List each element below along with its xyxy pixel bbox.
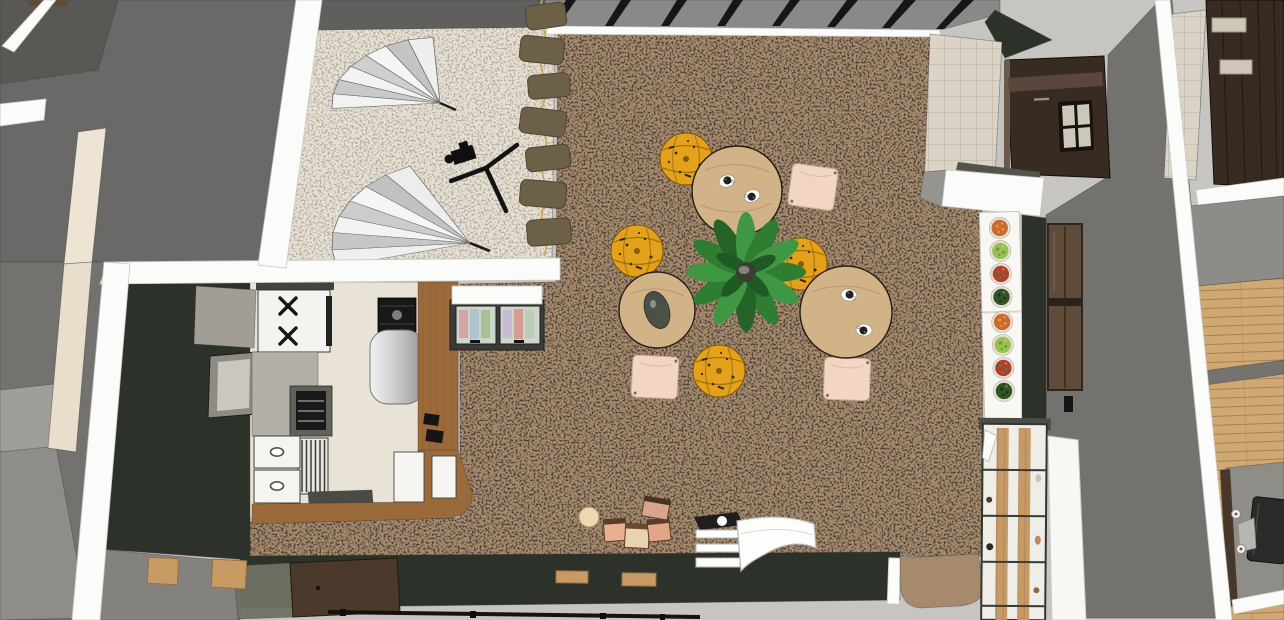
white-cabinet-1 [394, 452, 424, 502]
carpet-tongue [900, 554, 984, 608]
bench-rails [696, 530, 740, 567]
kids-block-3 [647, 518, 671, 542]
tile-step-2 [1220, 60, 1252, 74]
render-stage: Top-down 3D render of a cafe interior wi… [0, 0, 1284, 620]
interior-render [0, 0, 1284, 620]
dish-rack [298, 438, 328, 494]
salad-plate-1 [989, 217, 1011, 239]
kids-block-1 [603, 518, 626, 541]
case-top [452, 286, 542, 304]
pink-cushion-3 [823, 357, 870, 401]
gray-cabinet-top [194, 286, 256, 348]
gas-stove [258, 290, 332, 352]
salad-plate-6 [992, 334, 1014, 356]
brown-glass-panels [1048, 224, 1082, 412]
photo-studio [283, 0, 555, 267]
case-door-1 [456, 306, 496, 344]
cube-shelf-unit [977, 418, 1051, 620]
tile-step-1 [1212, 18, 1246, 32]
wall-socket [1064, 396, 1073, 412]
white-cabinet-2 [432, 456, 456, 498]
kids-round-pouf [579, 507, 599, 527]
entry-door [290, 558, 400, 617]
door-handle [316, 586, 320, 590]
round-table-2 [619, 272, 695, 348]
salad-plate-7 [993, 357, 1015, 379]
salad-plate-8 [993, 380, 1015, 402]
case-door-2 [500, 306, 540, 344]
hutch-window [1058, 100, 1094, 152]
range-hood [256, 282, 334, 290]
salad-plate-4 [991, 286, 1013, 308]
bar-back-wall [1022, 215, 1046, 428]
work-desk [1220, 462, 1284, 607]
kitchen-drawer-2 [254, 470, 300, 503]
left-gray-slab [0, 384, 56, 452]
floor-pouf-2 [611, 225, 663, 277]
kitchen-drawer-1 [254, 436, 300, 468]
shelf-item-1 [986, 497, 992, 503]
pink-cushion-1 [787, 163, 838, 211]
studio-back-wall [296, 0, 545, 30]
shelf-item-5 [1033, 587, 1039, 593]
kitchen-window [208, 352, 258, 418]
salad-plate-3 [990, 263, 1012, 285]
kids-block-4 [641, 496, 670, 520]
fridge [370, 330, 424, 404]
pastry-display-case [450, 286, 544, 350]
round-table-3 [800, 266, 892, 358]
shelf-item-2 [986, 543, 993, 550]
right-gray-floor [1190, 196, 1284, 286]
dark-wood-panel [1206, 0, 1284, 188]
pink-cushion-2 [631, 355, 679, 399]
wood-hutch [1004, 56, 1110, 178]
floor-pouf-4 [693, 345, 745, 397]
kitchen [86, 280, 472, 560]
wall-oven [290, 386, 332, 436]
door-jamb [887, 558, 901, 604]
espresso-machine [378, 298, 416, 332]
studio-front-wall [100, 258, 560, 284]
salad-plate-5 [991, 311, 1013, 333]
salad-plate-2 [990, 240, 1012, 262]
kids-block-2 [624, 523, 649, 548]
salad-bar [979, 211, 1024, 420]
